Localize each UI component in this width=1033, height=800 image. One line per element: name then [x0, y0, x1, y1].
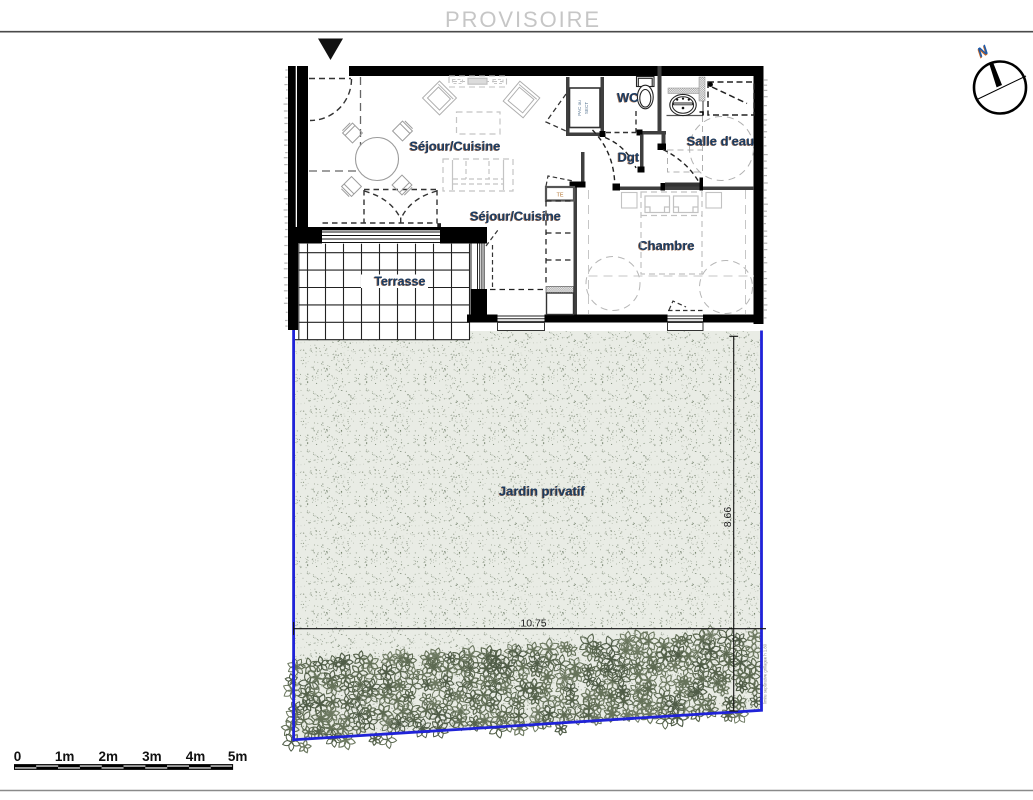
svg-text:Séjour/Cuisine: Séjour/Cuisine [409, 139, 500, 154]
svg-text:PAC ou: PAC ou [577, 100, 582, 116]
svg-text:0: 0 [14, 749, 22, 764]
svg-text:Chambre: Chambre [638, 238, 694, 253]
svg-text:limite separative grillagee h: limite separative grillagee h 1.80 [763, 643, 768, 704]
svg-text:Séjour/Cuisine: Séjour/Cuisine [470, 209, 561, 224]
svg-text:5m: 5m [228, 749, 248, 764]
svg-text:TE: TE [556, 193, 563, 199]
svg-text:Terrasse: Terrasse [374, 275, 425, 289]
svg-text:WC: WC [617, 90, 639, 105]
svg-text:Dgt: Dgt [618, 150, 640, 165]
svg-text:3m: 3m [142, 749, 162, 764]
svg-text:SECT: SECT [584, 102, 589, 114]
svg-text:Salle d'eau: Salle d'eau [687, 134, 754, 149]
svg-text:10.75: 10.75 [520, 617, 546, 629]
svg-text:PROVISOIRE: PROVISOIRE [445, 7, 601, 32]
svg-text:8.66: 8.66 [722, 507, 734, 528]
svg-text:1m: 1m [55, 749, 75, 764]
svg-text:4m: 4m [186, 749, 206, 764]
svg-text:2m: 2m [98, 749, 118, 764]
svg-text:Jardin privatif: Jardin privatif [499, 484, 586, 499]
